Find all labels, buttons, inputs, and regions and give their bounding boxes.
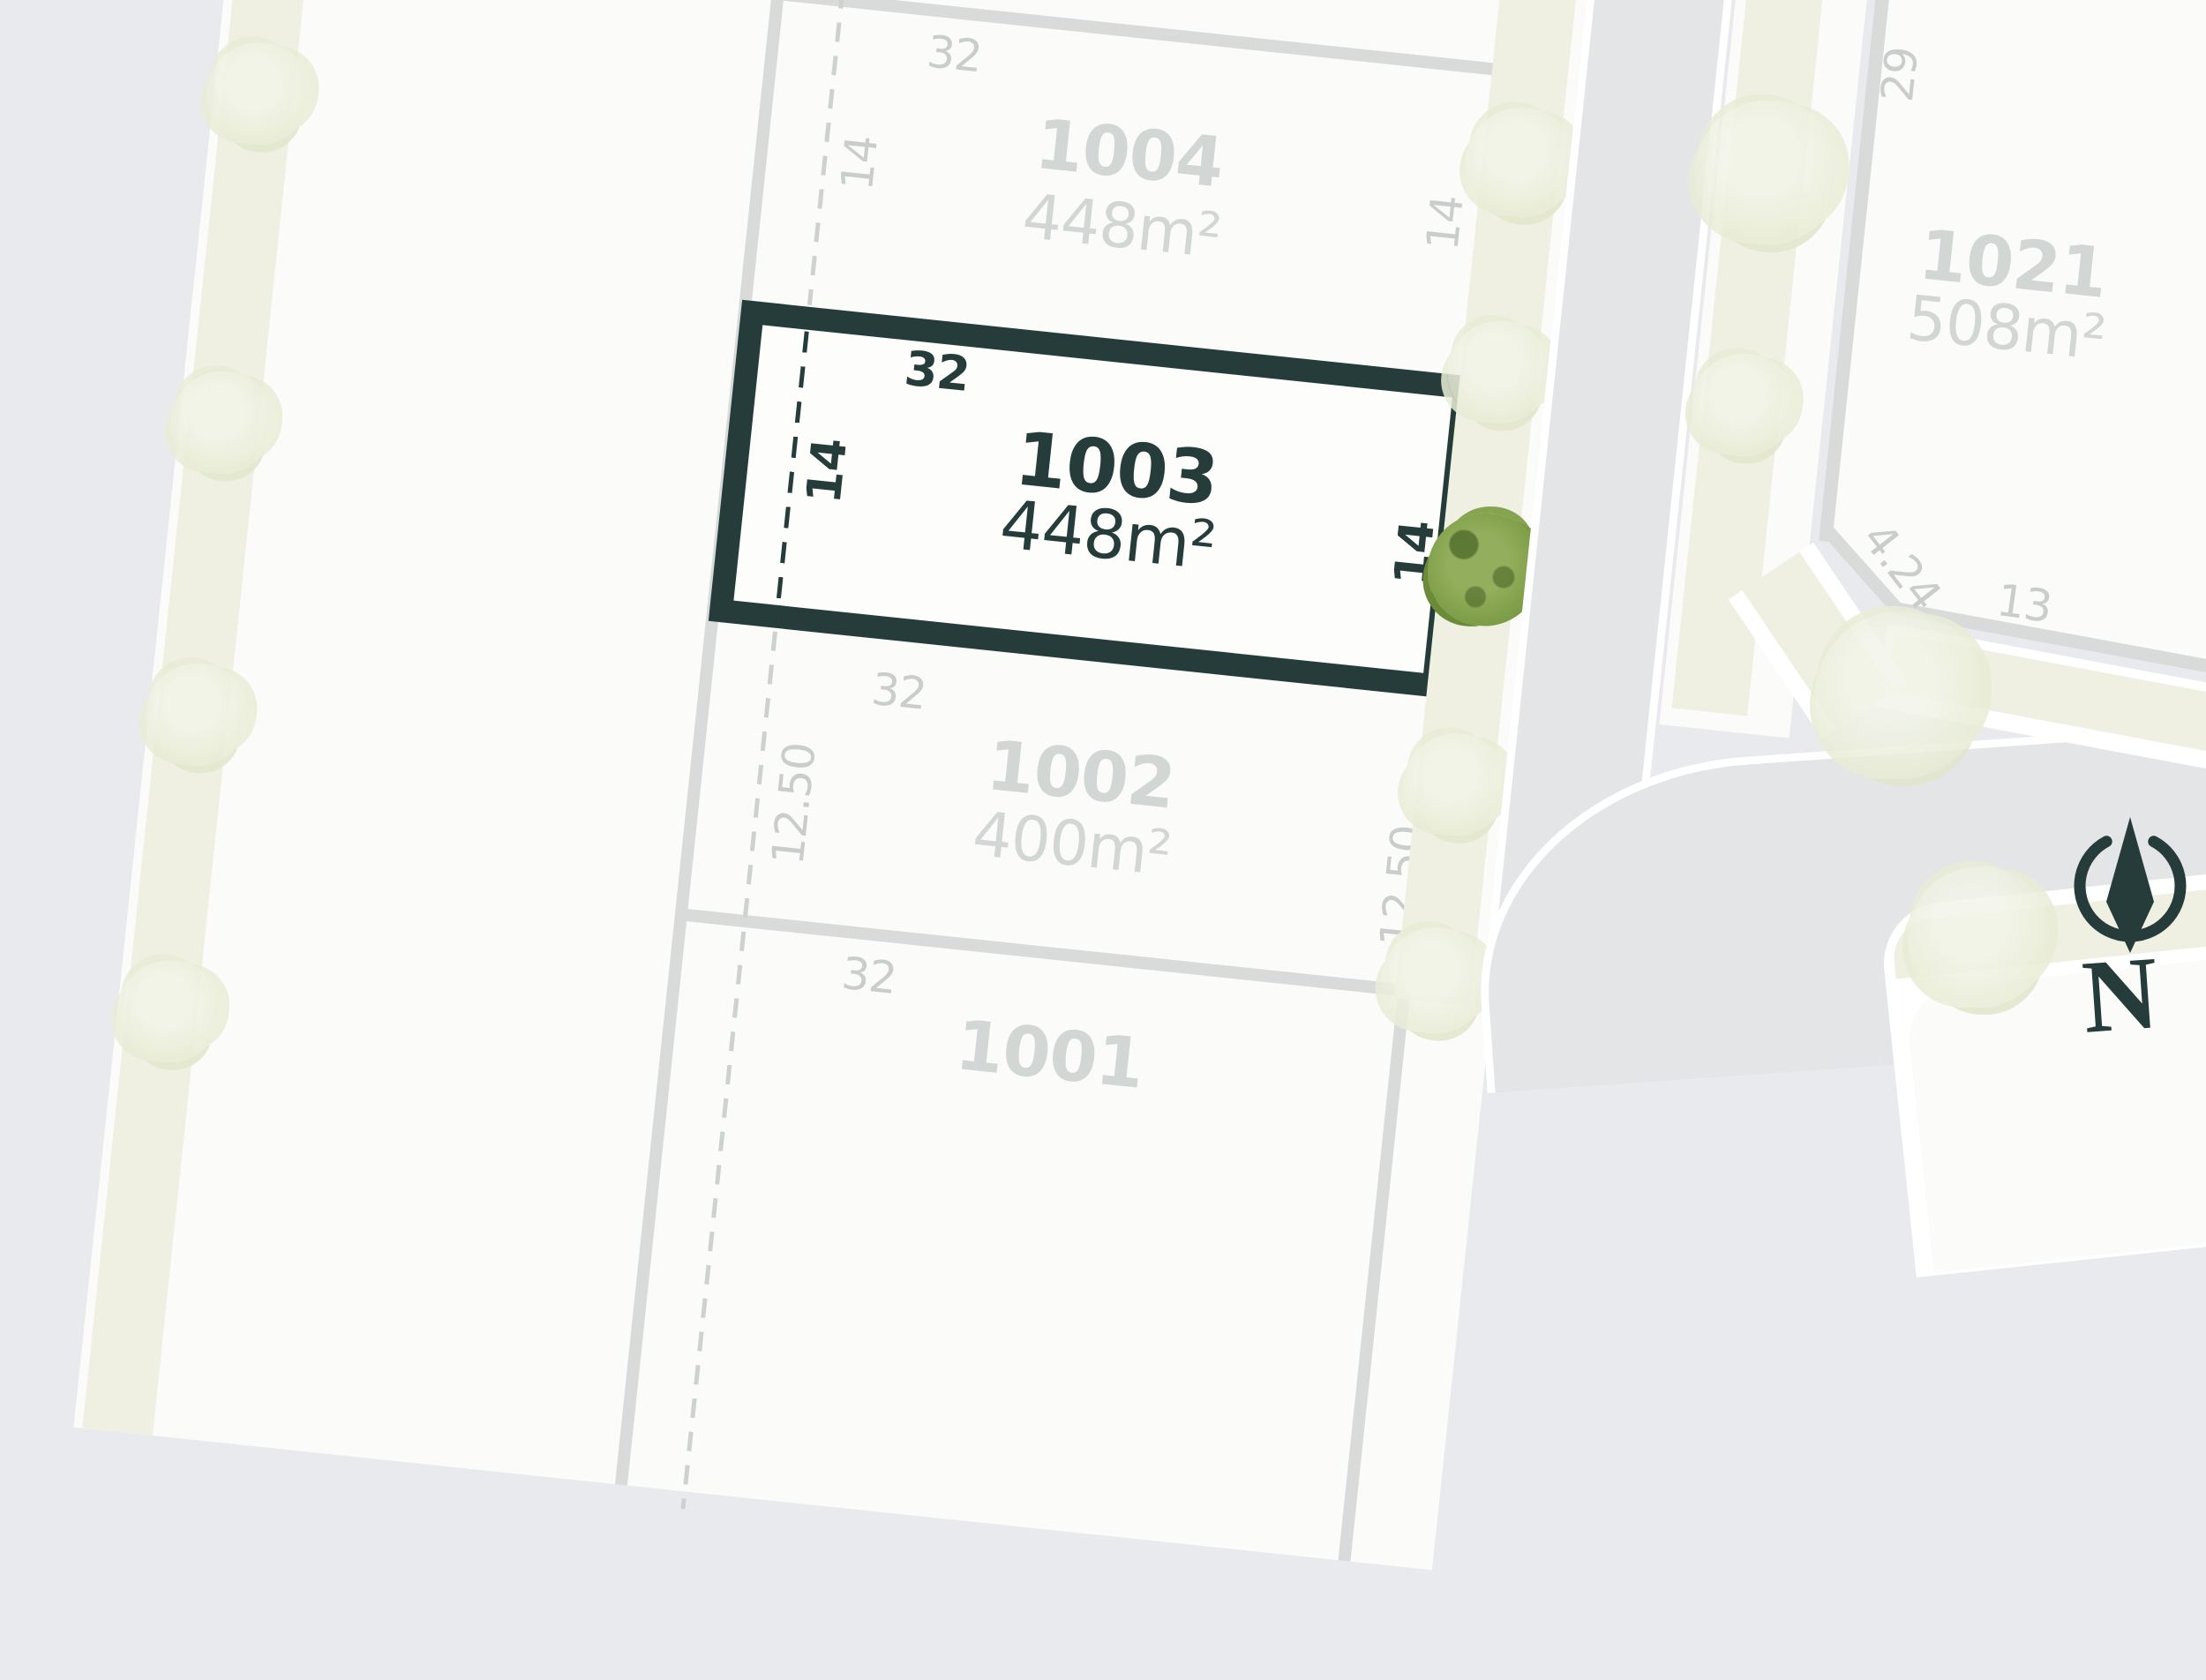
master-plan-map: 1004 448m² 32 14 14 1003 448m² 32 14 14 … bbox=[0, 0, 2206, 1041]
compass: N bbox=[2047, 805, 2206, 1043]
lot-1021-boundary-lines bbox=[0, 0, 2206, 1041]
tree-icon bbox=[1908, 866, 2049, 1008]
lot-1021-dim-bottom: 13 bbox=[1994, 578, 2054, 629]
tree-icon bbox=[1815, 611, 1983, 779]
compass-north-label: N bbox=[2079, 941, 2161, 1050]
